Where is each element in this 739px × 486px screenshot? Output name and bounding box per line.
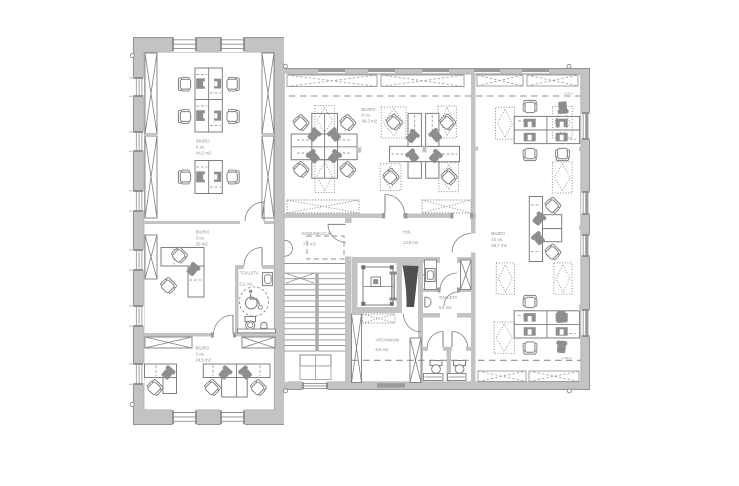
- svg-text:BIURO: BIURO: [196, 139, 210, 144]
- svg-text:13,8 m2: 13,8 m2: [403, 240, 419, 245]
- svg-text:8 os.: 8 os.: [362, 113, 371, 118]
- svg-text:BIURO: BIURO: [196, 230, 210, 235]
- svg-text:KOMUNIKACJA: KOMUNIKACJA: [302, 231, 332, 236]
- svg-text:TOALETA: TOALETA: [439, 295, 458, 300]
- svg-text:6 os.: 6 os.: [196, 145, 205, 150]
- svg-text:TOALETA: TOALETA: [240, 271, 259, 276]
- svg-text:BIURO: BIURO: [196, 346, 210, 351]
- svg-text:ARCHIWUM: ARCHIWUM: [376, 338, 400, 343]
- svg-text:6,6 m2: 6,6 m2: [439, 305, 452, 310]
- svg-text:44,2 m2: 44,2 m2: [196, 151, 212, 156]
- svg-text:3 os.: 3 os.: [196, 236, 205, 241]
- svg-text:7,5 m2: 7,5 m2: [303, 242, 316, 247]
- svg-text:+2,80 m: +2,80 m: [561, 356, 572, 360]
- svg-text:46,3 m2: 46,3 m2: [362, 118, 378, 123]
- svg-text:6,6 m2: 6,6 m2: [376, 347, 389, 352]
- svg-text:5,2 m2: 5,2 m2: [240, 282, 253, 287]
- svg-text:25 m2: 25 m2: [196, 242, 209, 247]
- svg-text:BIURO: BIURO: [362, 107, 376, 112]
- svg-text:58,7 m2: 58,7 m2: [491, 243, 507, 248]
- svg-text:24,5 m2: 24,5 m2: [196, 358, 212, 363]
- svg-text:BIURO: BIURO: [491, 231, 505, 236]
- svg-text:HOL: HOL: [403, 230, 412, 235]
- svg-text:+2,80 m: +2,80 m: [563, 92, 574, 96]
- svg-text:3 os.: 3 os.: [196, 352, 205, 357]
- svg-text:10 os.: 10 os.: [491, 237, 503, 242]
